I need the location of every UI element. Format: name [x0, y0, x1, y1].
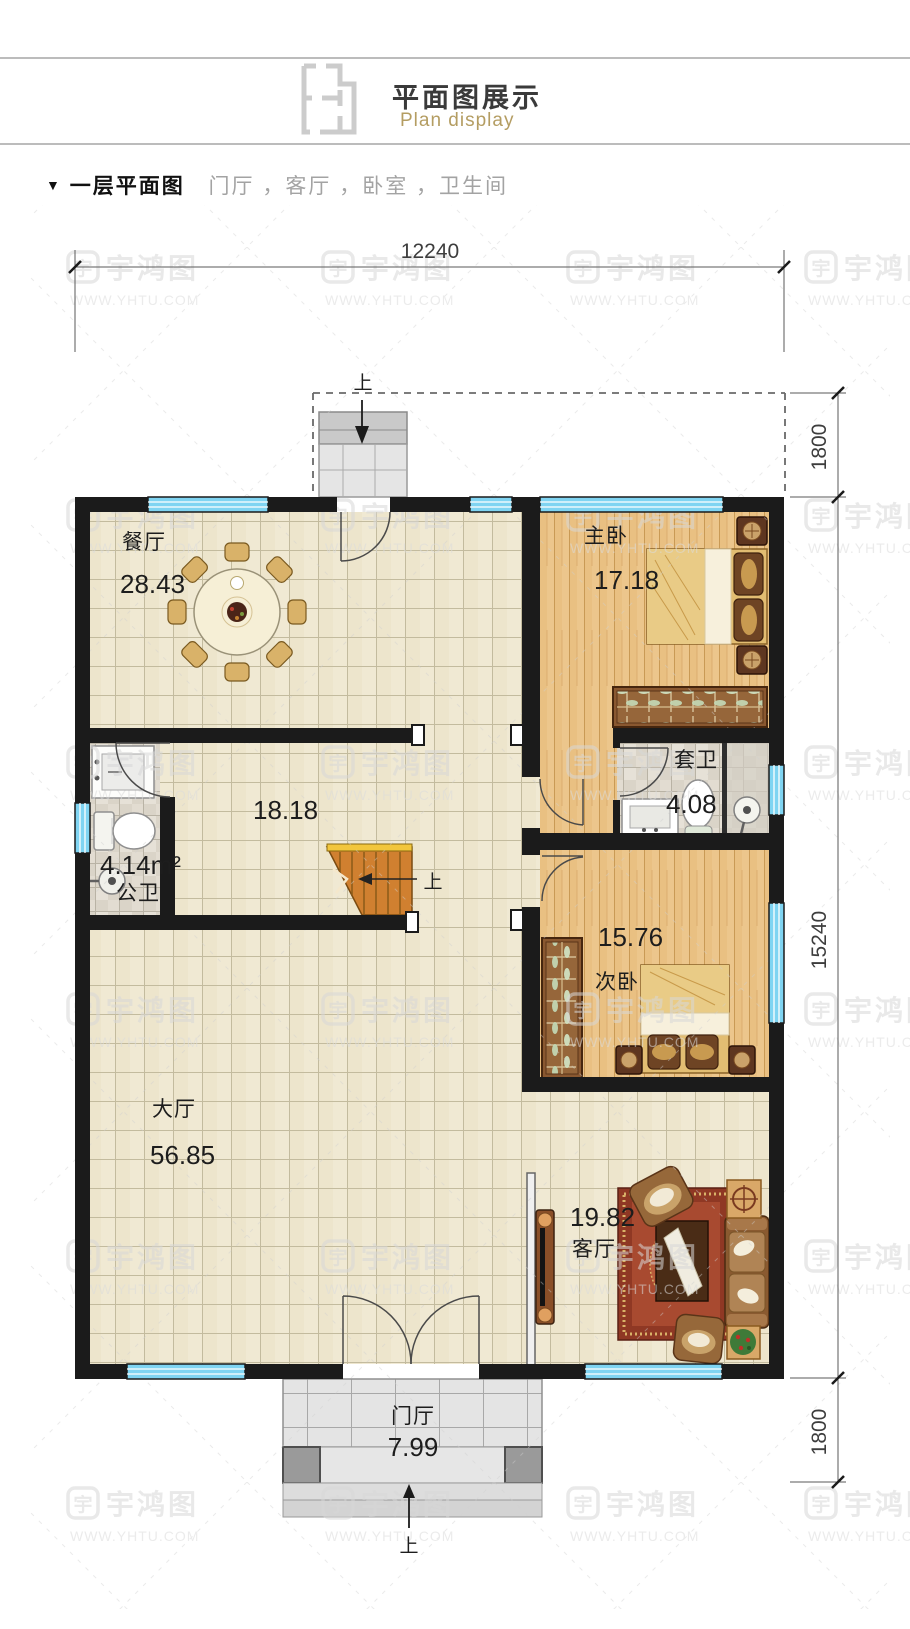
- room-area-mid-hall: 18.18: [253, 795, 318, 825]
- room-area-public-bath: 4.14m²: [100, 850, 181, 880]
- room-area-dining: 28.43: [120, 569, 185, 599]
- room-label-second-bed: 次卧: [595, 971, 639, 994]
- window: [769, 903, 784, 1023]
- window: [148, 497, 268, 512]
- room-label-ensuite: 套卫: [674, 749, 718, 772]
- floor-plan: 宇 宇鸿图 WWW.YHTU.COM: [0, 0, 910, 1629]
- dim-right-top: 1800: [808, 424, 831, 471]
- room-label-living: 客厅: [572, 1238, 616, 1261]
- room-area-great-hall: 56.85: [150, 1140, 215, 1170]
- window: [769, 765, 784, 815]
- window: [127, 1364, 245, 1379]
- dim-right-main: 15240: [808, 911, 831, 969]
- room-label-public-bath: 公卫: [116, 882, 160, 905]
- page: { "header": { "title_zh": "平面图展示", "titl…: [0, 0, 910, 1629]
- dim-right-bottom: 1800: [808, 1409, 831, 1456]
- room-label-foyer: 门厅: [391, 1405, 435, 1428]
- room-label-master: 主卧: [584, 525, 628, 548]
- up-label-entry: 上: [399, 1535, 418, 1557]
- up-label-rear: 上: [353, 372, 372, 394]
- room-area-foyer: 7.99: [388, 1432, 439, 1462]
- window: [470, 497, 512, 512]
- room-area-master: 17.18: [594, 565, 659, 595]
- room-area-ensuite: 4.08: [666, 789, 717, 819]
- window: [585, 1364, 722, 1379]
- window: [75, 803, 90, 853]
- dim-width: 12240: [401, 240, 459, 263]
- window: [540, 497, 723, 512]
- room-label-dining: 餐厅: [122, 531, 166, 554]
- up-label-stairs: 上: [423, 871, 442, 893]
- room-area-second-bed: 15.76: [598, 922, 663, 952]
- room-label-great-hall: 大厅: [152, 1098, 196, 1121]
- room-area-living: 19.82: [570, 1202, 635, 1232]
